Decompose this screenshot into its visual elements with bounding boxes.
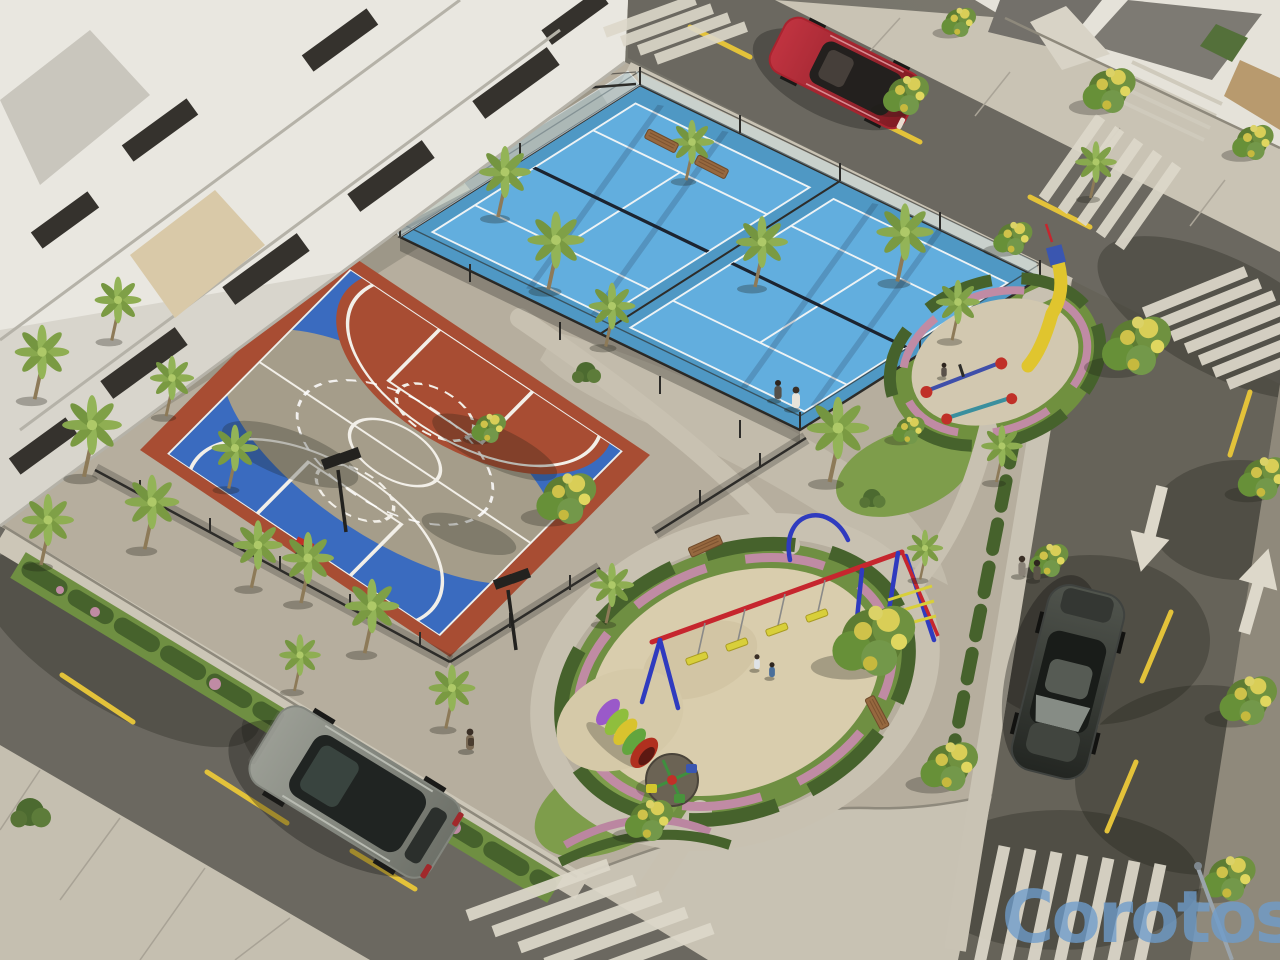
aerial-render-residential-park: Corotos	[0, 0, 1280, 960]
watermark: Corotos	[1001, 875, 1280, 959]
